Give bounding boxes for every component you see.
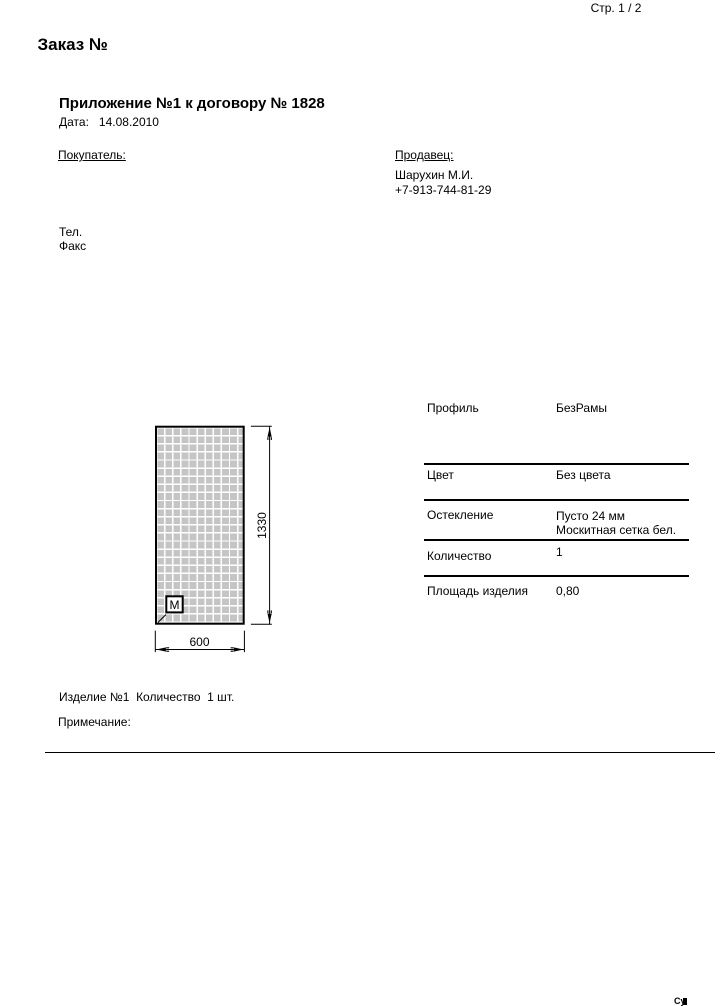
svg-text:М: М — [170, 598, 180, 612]
svg-text:600: 600 — [189, 635, 209, 649]
svg-text:1330: 1330 — [255, 512, 269, 539]
